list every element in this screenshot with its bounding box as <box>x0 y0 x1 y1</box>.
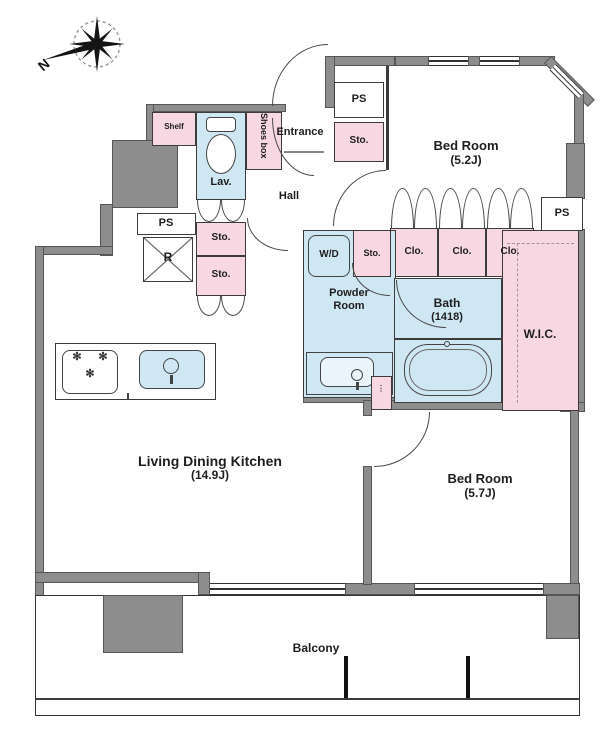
balcony-rail-line <box>35 698 580 700</box>
label-sto-entrance: Sto. <box>350 135 369 147</box>
wall <box>146 104 286 112</box>
label-bath-name: Bath <box>431 297 463 311</box>
wall <box>35 246 113 255</box>
wall <box>325 56 395 66</box>
label-bedroom1-size: (5.2J) <box>434 154 499 168</box>
label-ldk: Living Dining Kitchen (14.9J) <box>138 453 282 483</box>
illegible-vertical-label: ⋮ <box>377 384 385 393</box>
label-ldk-size: (14.9J) <box>138 469 282 483</box>
door-double <box>197 200 221 222</box>
burner-icon: ✻ <box>85 368 94 381</box>
kitchen-faucet-icon <box>163 358 179 374</box>
bath-faucet-icon <box>444 341 450 347</box>
label-refrigerator: R <box>164 251 173 265</box>
wall <box>395 56 429 66</box>
label-shoes-box: Shoes box <box>259 113 269 169</box>
label-entrance: Entrance <box>276 126 323 139</box>
label-ldk-name: Living Dining Kitchen <box>138 453 282 469</box>
label-washer-dryer: W/D <box>319 249 338 261</box>
balcony-partition-mark <box>466 656 470 698</box>
label-wic: W.I.C. <box>524 328 557 342</box>
door-double <box>197 296 221 316</box>
closet-door <box>439 188 462 228</box>
inner-wall <box>386 66 389 170</box>
door-swing-entrance <box>272 44 328 106</box>
label-bedroom2-name: Bed Room <box>448 472 513 487</box>
wall <box>198 572 210 595</box>
window <box>429 56 468 66</box>
label-closet-3: Clo. <box>501 246 520 258</box>
label-ps-left: PS <box>159 217 174 230</box>
hanger-pipe-line <box>517 243 518 403</box>
wall <box>566 143 585 199</box>
label-bedroom1: Bed Room (5.2J) <box>434 139 499 168</box>
burner-icon: ✻ <box>72 351 81 364</box>
label-bedroom1-name: Bed Room <box>434 139 499 154</box>
balcony-sliding-door <box>415 583 543 595</box>
balcony-pillar <box>103 595 183 653</box>
wall <box>543 583 580 595</box>
label-ps-top: PS <box>352 93 367 106</box>
wall <box>574 94 584 146</box>
label-powder-room: Powder Room <box>316 287 382 312</box>
closet-door <box>487 188 510 228</box>
label-sto-1: Sto. <box>212 232 231 244</box>
toilet-bowl-icon <box>206 134 236 174</box>
label-sto-2: Sto. <box>212 269 231 281</box>
floor-plan: N <box>0 0 615 746</box>
label-bath-size: (1418) <box>431 311 463 324</box>
faucet-spout <box>356 382 359 390</box>
wall <box>345 583 415 595</box>
closet-door <box>462 188 485 228</box>
label-sto-mid: Sto. <box>364 248 381 258</box>
closet-door <box>414 188 437 228</box>
label-closet-2: Clo. <box>453 246 472 258</box>
label-ps-right: PS <box>555 207 570 220</box>
counter-divider <box>127 393 129 400</box>
closet-door <box>391 188 414 228</box>
label-balcony: Balcony <box>293 642 340 656</box>
bathtub-inner-line <box>409 349 487 391</box>
balcony-step <box>546 595 579 639</box>
balcony-sliding-door <box>210 583 345 595</box>
kitchen-faucet-spout <box>170 375 173 384</box>
door-swing-bedroom2 <box>374 412 430 467</box>
door-swing-hall-ldk <box>247 218 288 251</box>
wall <box>35 246 44 596</box>
label-closet-1: Clo. <box>405 246 424 258</box>
label-hall: Hall <box>279 190 299 203</box>
window <box>480 56 519 66</box>
burner-icon: ✻ <box>98 351 107 364</box>
toilet-icon <box>206 117 236 132</box>
wall <box>468 56 480 66</box>
balcony-partition-mark <box>344 656 348 698</box>
label-shelf: Shelf <box>164 122 184 131</box>
faucet-icon <box>351 369 363 381</box>
wall <box>35 572 207 583</box>
label-bath: Bath (1418) <box>431 297 463 323</box>
door-swing-bedroom1 <box>333 170 386 226</box>
closet-door <box>510 188 533 228</box>
door-double <box>221 296 245 316</box>
label-bedroom2: Bed Room (5.7J) <box>448 472 513 501</box>
structural-pillar <box>112 140 178 208</box>
label-bedroom2-size: (5.7J) <box>448 487 513 501</box>
compass-rose-icon: N <box>35 2 150 90</box>
wall <box>570 410 579 585</box>
door-double <box>221 200 245 222</box>
bath-zone-line <box>395 338 501 340</box>
wall <box>363 466 372 585</box>
label-lavatory: Lav. <box>210 176 231 189</box>
window-chamfer <box>550 64 585 99</box>
vanity-sink-icon <box>320 357 374 387</box>
